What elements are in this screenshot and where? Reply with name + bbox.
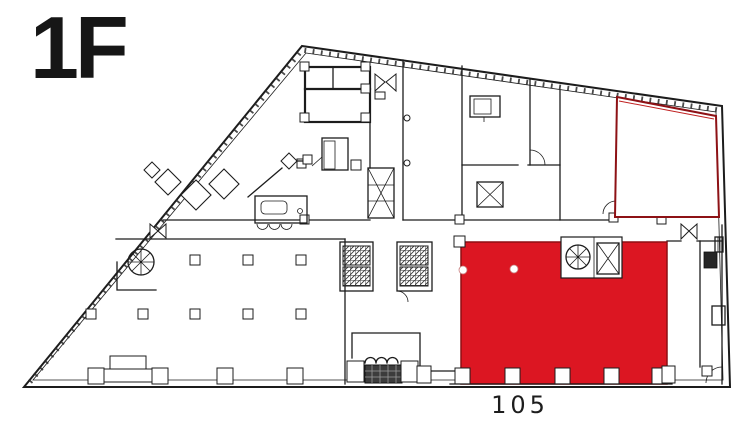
hall-table	[104, 356, 152, 382]
unit-105-stair-core	[561, 237, 622, 278]
floor-plan-image: 1F 105	[0, 0, 740, 423]
floor-label: 1F	[30, 4, 125, 92]
outlined-room-top-right	[615, 97, 719, 217]
entrance-mat	[365, 365, 402, 383]
unit-105-label: 105	[468, 391, 572, 419]
